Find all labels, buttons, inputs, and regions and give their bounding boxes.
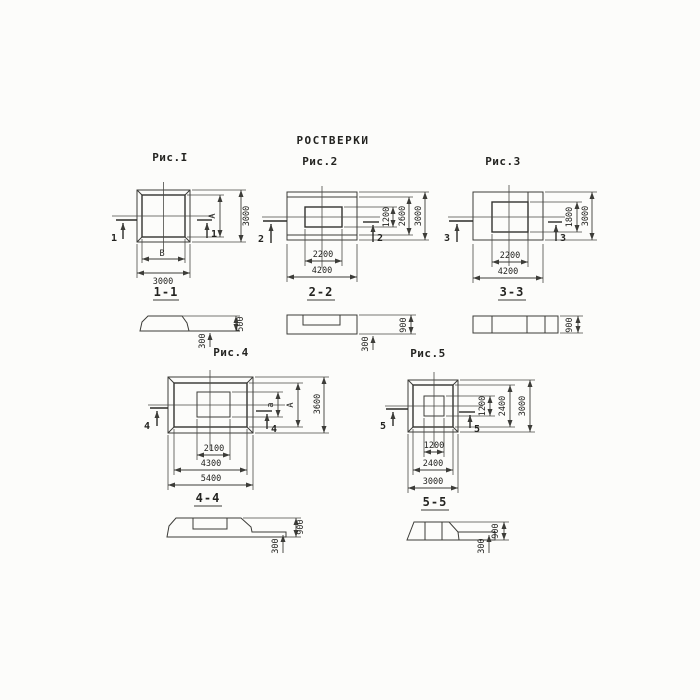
fig1-dimensions: 3000 А В 3000 [137, 190, 252, 287]
fig4-outer-width-dim: 5400 [201, 474, 221, 484]
fig3-outer-width-dim: 4200 [498, 267, 518, 277]
fig5-inner-height-dim: 1200 [478, 396, 488, 416]
fig5-dimensions: 1200 2400 3000 1200 2400 3000 [408, 380, 535, 493]
fig2-section-toe-dim: 300 [361, 336, 371, 351]
fig4-cut-markers: 4 4 [144, 408, 277, 435]
fig1-section-height-dim: 500 [236, 316, 246, 331]
sheet-title: РОСТВЕРКИ [296, 134, 369, 147]
fig1-label: Рис.I [152, 151, 188, 164]
fig3-section-height-dim: 900 [565, 317, 575, 332]
fig1-cut-markers: 1 1 [111, 220, 217, 244]
fig1-outer-height-dim: 3000 [242, 206, 252, 226]
fig5-mid-height-dim: 2400 [498, 396, 508, 416]
fig3-section-label: 3-3 [500, 285, 525, 299]
figure-2: Рис.2 1200 2600 3000 2200 [258, 155, 429, 352]
fig3-inner-height-dim: 1800 [565, 207, 575, 227]
fig1-section-toe-dim: 300 [198, 333, 208, 348]
fig4-mid-width-dim: 4300 [201, 459, 221, 469]
fig1-section-label: 1-1 [154, 285, 179, 299]
fig2-inner-height-dim: 1200 [382, 207, 392, 227]
fig2-section-label: 2-2 [309, 285, 334, 299]
fig5-outer-width-dim: 3000 [423, 477, 443, 487]
fig2-cut-label-right: 2 [377, 233, 383, 244]
fig5-inner-width-dim: 1200 [424, 441, 444, 451]
fig2-outer-height-dim: 3000 [414, 206, 424, 226]
figure-4: Рис.4 а А 3600 [144, 346, 329, 554]
fig4-mid-height-dim: А [286, 402, 296, 407]
technical-drawing: РОСТВЕРКИ Рис.I 3000 А В [0, 0, 700, 700]
fig2-inner-width-dim: 2200 [313, 250, 333, 260]
fig3-cut-label-left: 3 [444, 233, 450, 244]
fig4-outer-height-dim: 3600 [313, 394, 323, 414]
fig4-label: Рис.4 [213, 346, 249, 359]
fig3-cut-label-right: 3 [560, 233, 566, 244]
fig2-outer-width-dim: 4200 [312, 266, 332, 276]
fig5-section-toe-dim: 300 [477, 538, 487, 553]
fig4-section-toe-dim: 300 [271, 538, 281, 553]
fig5-outer-height-dim: 3000 [518, 396, 528, 416]
figure-5: Рис.5 1200 2400 3000 [380, 347, 535, 554]
fig5-section-label: 5-5 [423, 495, 448, 509]
fig2-cut-markers: 2 2 [258, 221, 383, 245]
fig2-mid-height-dim: 2600 [398, 206, 408, 226]
fig4-cut-label-left: 4 [144, 421, 150, 432]
fig1-section-view: 500 300 [140, 316, 246, 349]
fig5-plan-view [385, 372, 483, 448]
fig2-dimensions: 1200 2600 3000 2200 4200 [287, 192, 429, 282]
fig4-inner-height-dim: а [266, 402, 276, 407]
fig5-section-height-dim: 900 [491, 523, 501, 538]
fig2-label: Рис.2 [302, 155, 338, 168]
fig1-inner-width-dim: В [159, 249, 164, 259]
figure-3: Рис.3 1800 3000 2200 4200 [444, 155, 597, 333]
fig4-plan-view [148, 370, 285, 450]
fig4-inner-width-dim: 2100 [204, 444, 224, 454]
fig3-label: Рис.3 [485, 155, 521, 168]
fig2-section-height-dim: 900 [399, 317, 409, 332]
fig3-outer-height-dim: 3000 [581, 206, 591, 226]
fig4-cut-label-right: 4 [271, 424, 277, 435]
fig1-cut-label-left: 1 [111, 233, 117, 244]
fig5-cut-markers: 5 5 [380, 409, 480, 435]
fig5-label: Рис.5 [410, 347, 446, 360]
fig5-cut-label-right: 5 [474, 424, 480, 435]
fig1-inner-height-dim: А [208, 213, 218, 218]
figure-1: Рис.I 3000 А В 3000 [111, 151, 252, 349]
fig5-cut-label-left: 5 [380, 421, 386, 432]
fig2-cut-label-left: 2 [258, 234, 264, 245]
fig5-mid-width-dim: 2400 [423, 459, 443, 469]
fig1-cut-label-right: 1 [211, 229, 217, 240]
fig4-section-height-dim: 900 [296, 519, 306, 534]
fig2-section-view: 900 300 [287, 315, 416, 352]
fig5-section-view: 900 300 [407, 522, 509, 554]
fig3-section-view: 900 [473, 316, 583, 333]
drawing-sheet: РОСТВЕРКИ Рис.I 3000 А В [0, 0, 700, 700]
fig3-inner-width-dim: 2200 [500, 251, 520, 261]
fig4-section-view: 900 300 [167, 518, 306, 554]
fig4-section-label: 4-4 [196, 491, 221, 505]
fig1-plan-view [112, 182, 212, 252]
